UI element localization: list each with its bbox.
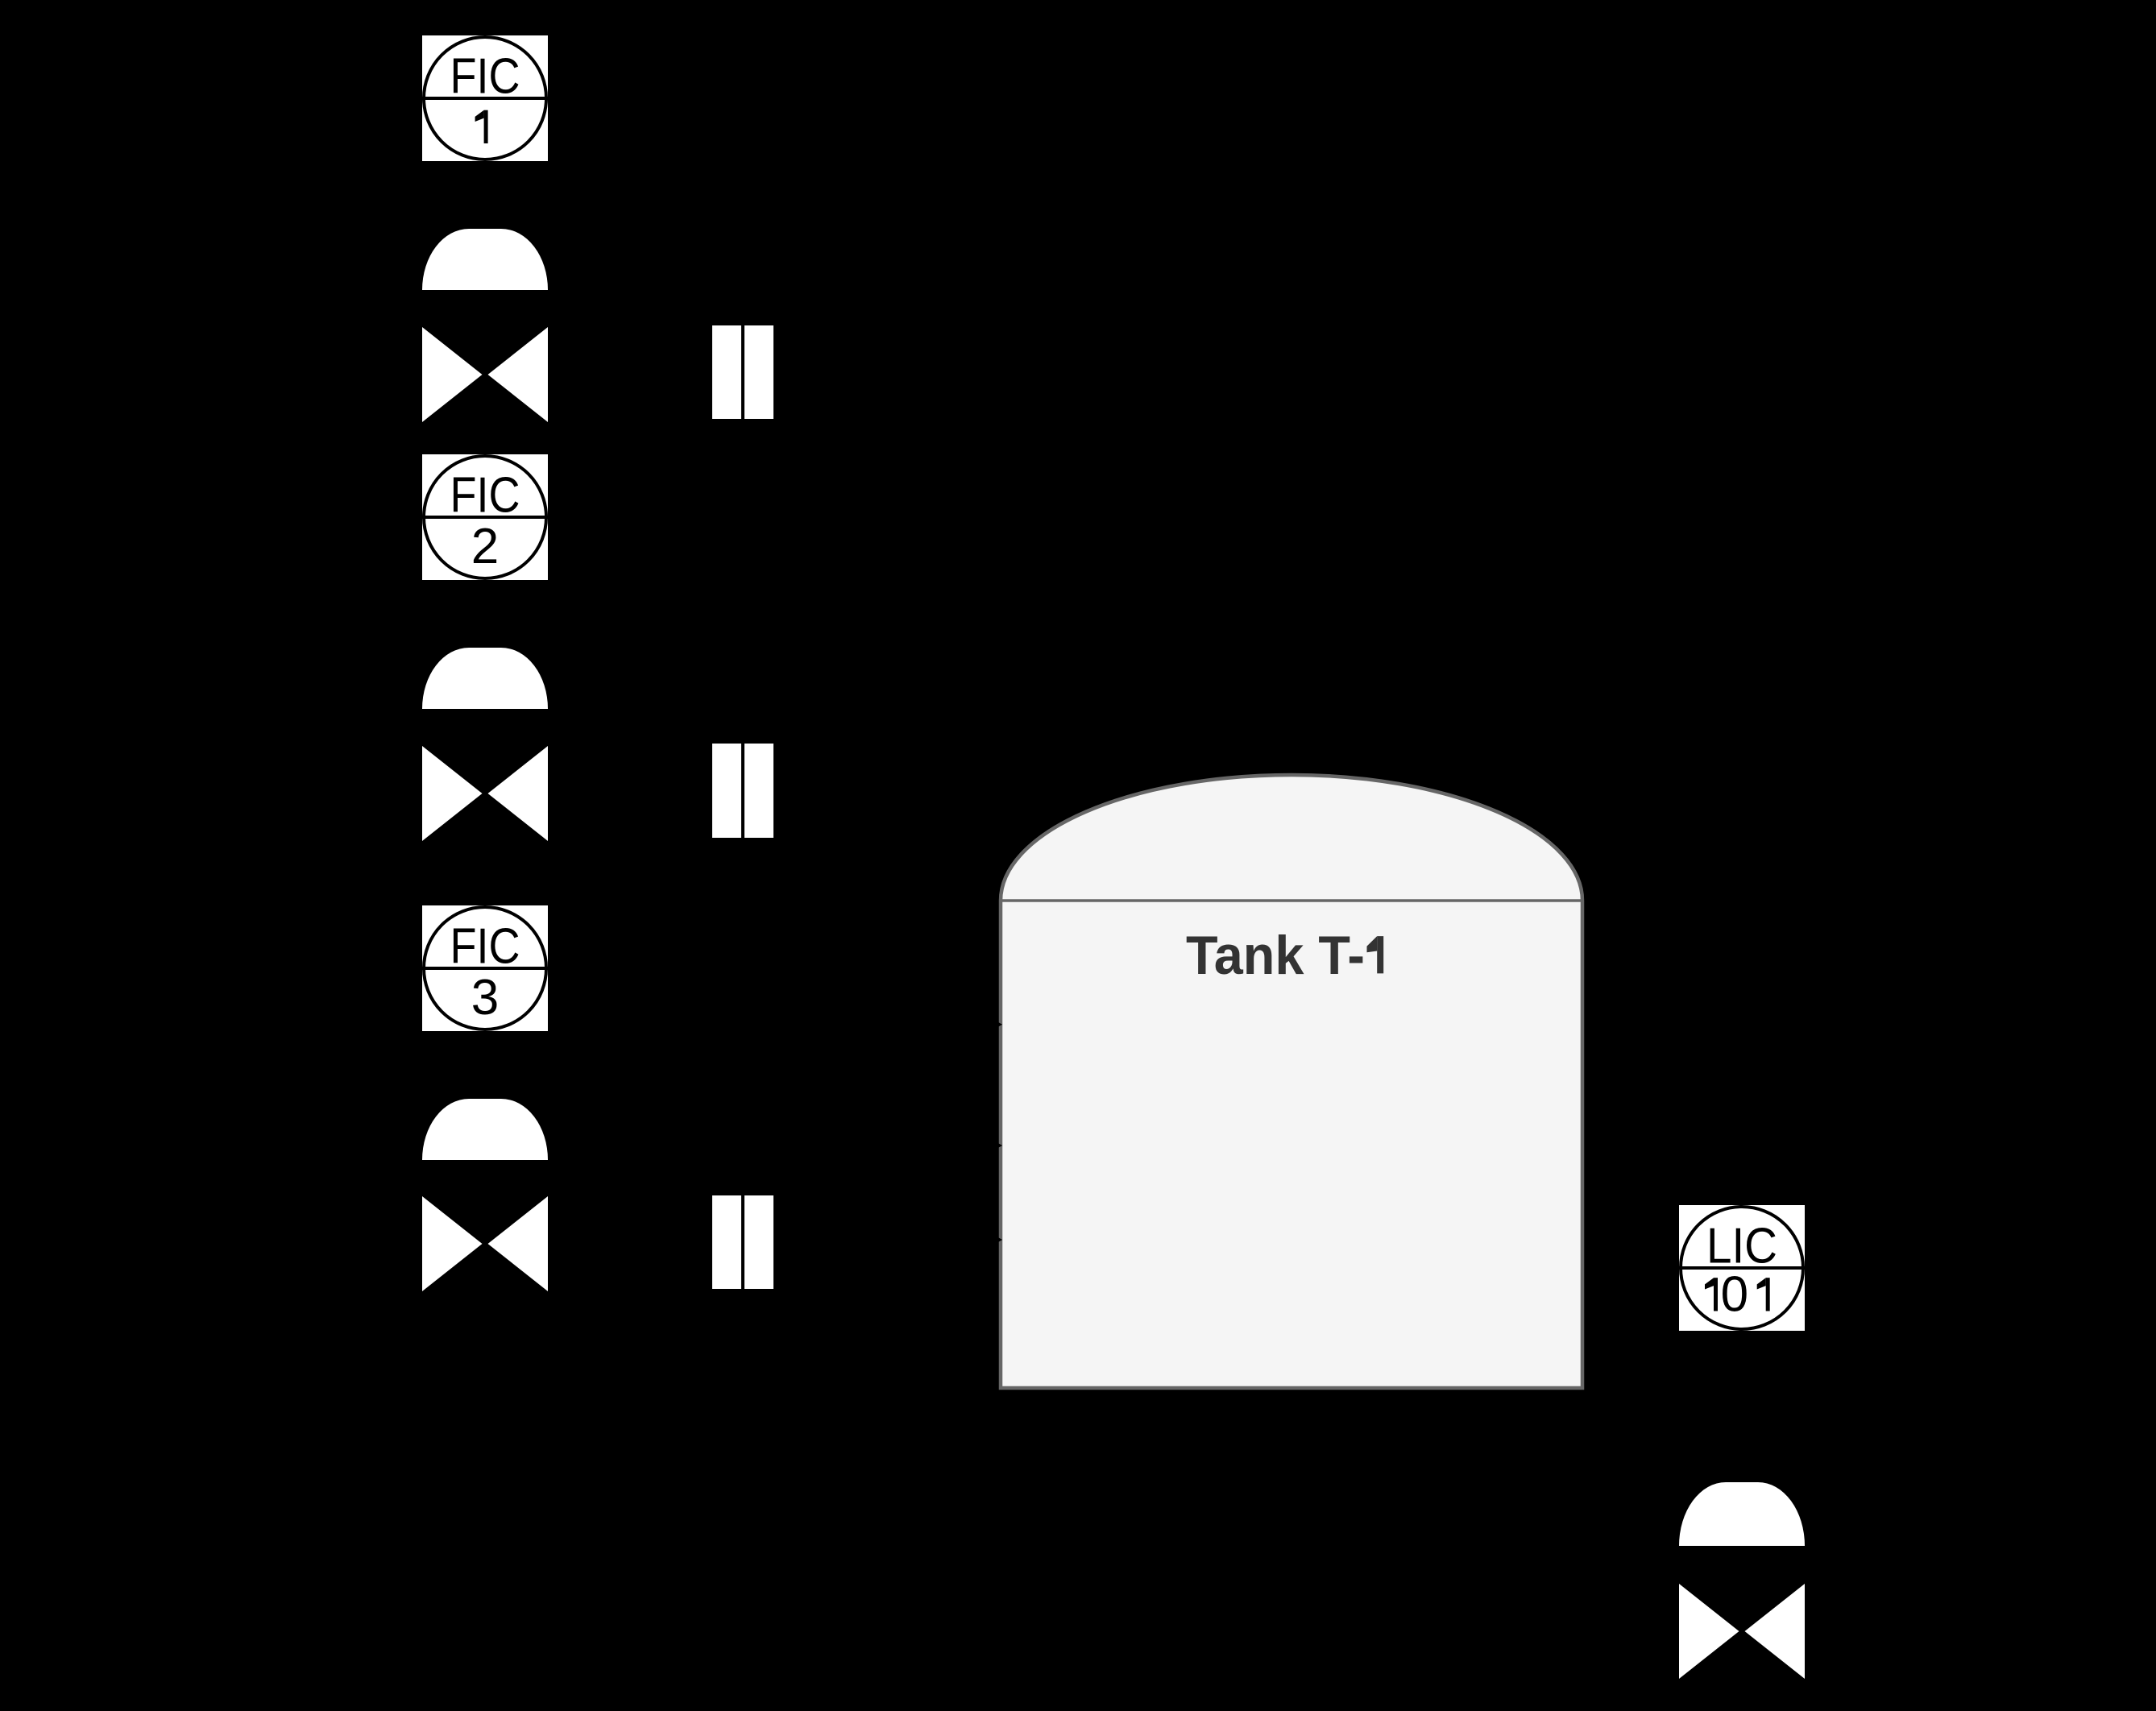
svg-text:FIC: FIC: [450, 49, 520, 105]
svg-text:0: 0: [1721, 1267, 1748, 1323]
svg-text:Tank T-: Tank T-: [1186, 925, 1365, 986]
svg-text:2: 2: [471, 519, 499, 574]
svg-text:FIC: FIC: [450, 468, 520, 524]
svg-text:3: 3: [471, 970, 499, 1025]
svg-text:FIC: FIC: [450, 919, 520, 975]
svg-text:LIC: LIC: [1706, 1219, 1777, 1274]
